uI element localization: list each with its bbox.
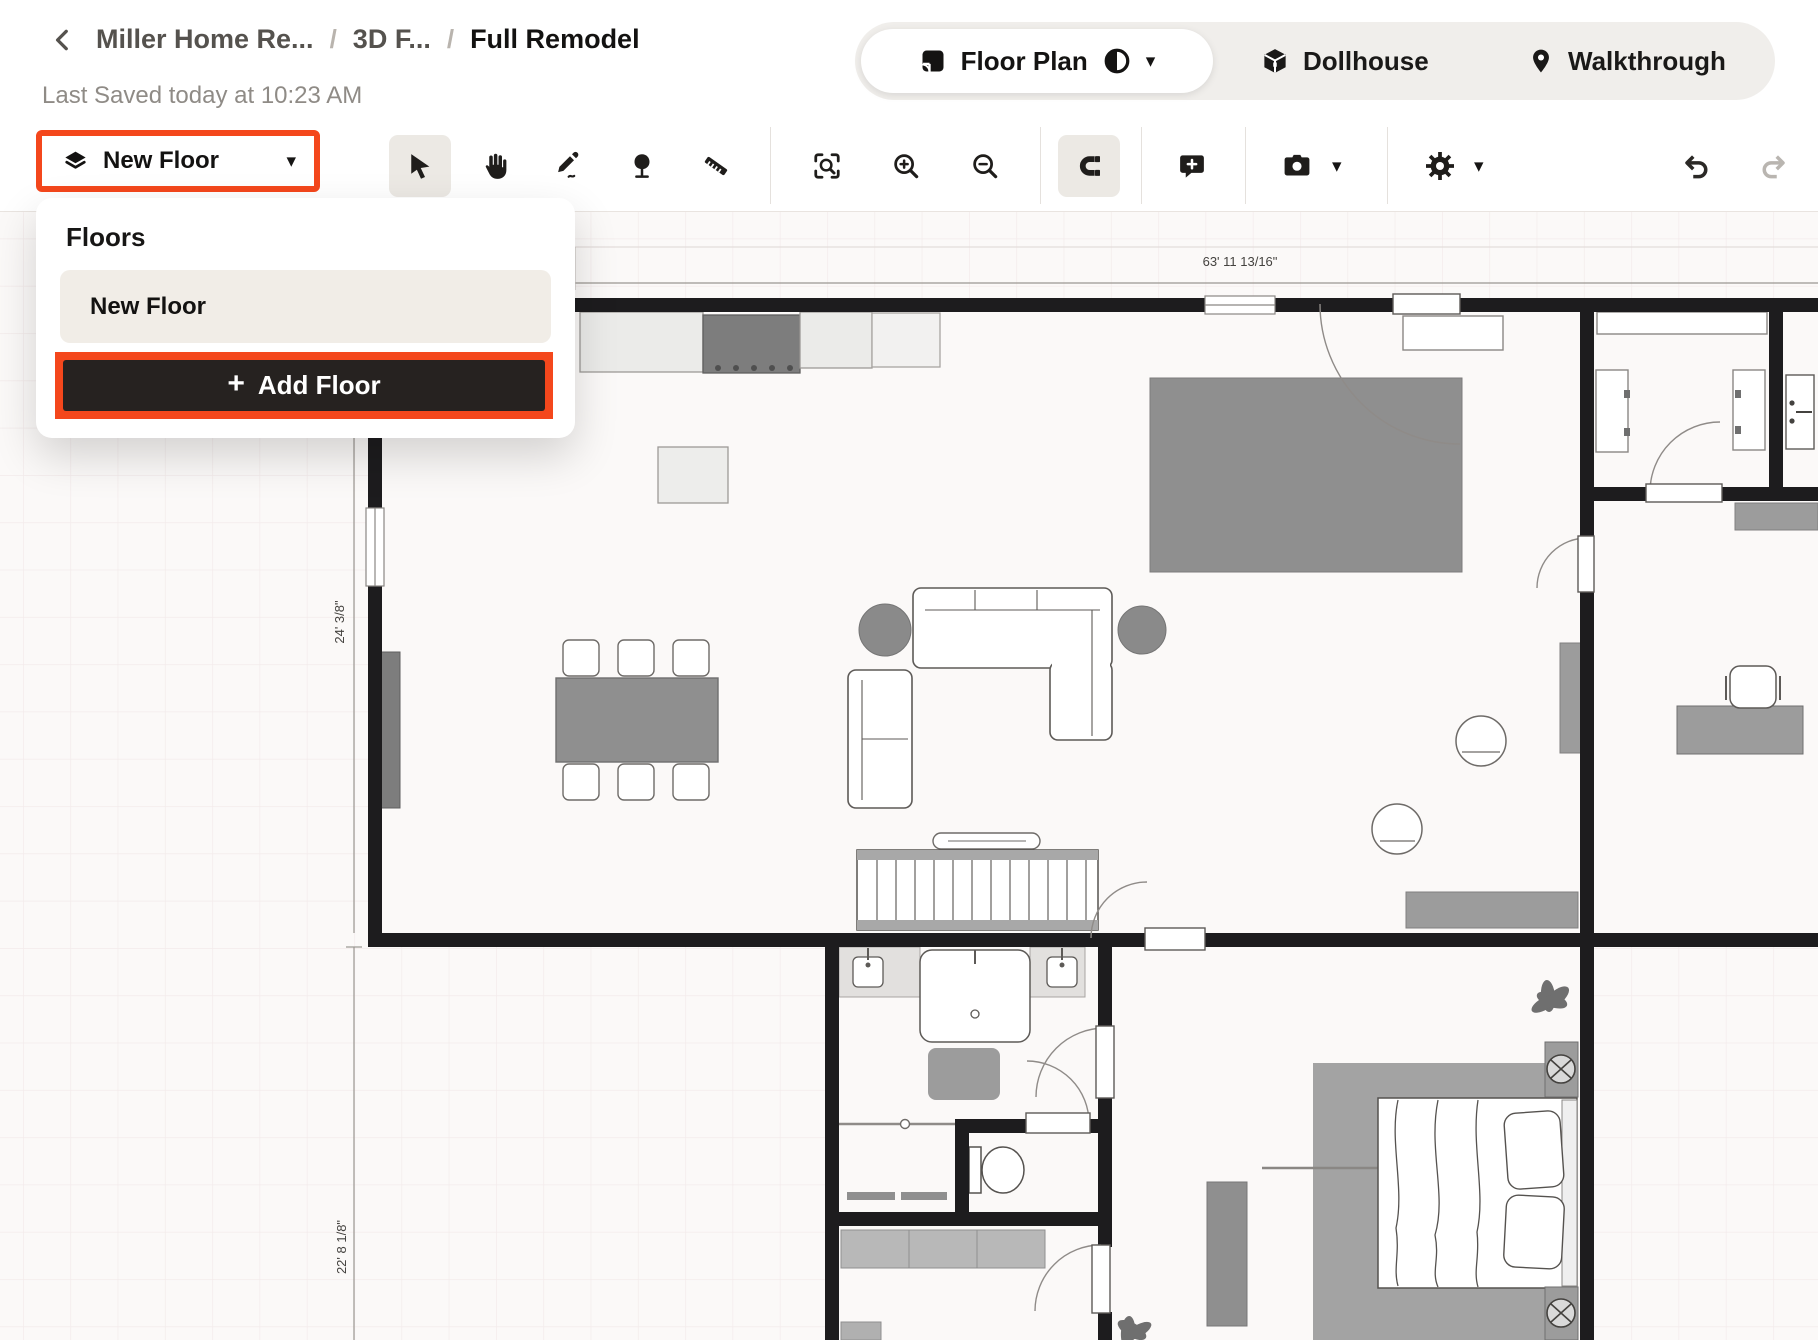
undo-button[interactable] — [1666, 135, 1728, 197]
breadcrumb-separator: / — [330, 24, 337, 55]
fridge — [872, 313, 940, 367]
add-floor-label: Add Floor — [258, 370, 381, 401]
plants-tool-button[interactable] — [611, 135, 673, 197]
kitchen-island — [658, 447, 728, 503]
pillow — [1503, 1110, 1564, 1190]
toolbar-divider — [1387, 127, 1388, 204]
select-tool-button[interactable] — [389, 135, 451, 197]
walkthrough-pin-icon — [1527, 47, 1555, 75]
zoom-fit-icon — [812, 151, 842, 181]
layers-icon — [62, 148, 89, 175]
armchair — [1456, 716, 1506, 766]
loveseat — [848, 670, 912, 808]
pan-tool-button[interactable] — [463, 135, 525, 197]
breadcrumb-separator: / — [447, 24, 454, 55]
chevron-left-icon — [50, 27, 76, 53]
snapshot-button[interactable] — [1266, 135, 1328, 197]
nightstand — [1545, 1287, 1578, 1340]
sideboard — [1560, 643, 1581, 753]
dim-lower-height: 22' 8 1/8" — [334, 1220, 349, 1274]
side-table — [1118, 606, 1166, 654]
dining-set[interactable] — [556, 640, 718, 800]
toilet — [969, 1147, 1024, 1193]
contrast-icon[interactable] — [1102, 46, 1132, 76]
breadcrumb-folder[interactable]: 3D F... — [353, 24, 431, 55]
zoom-in-icon — [891, 151, 921, 181]
shower-drain — [901, 1192, 947, 1200]
chevron-down-icon: ▾ — [286, 152, 296, 171]
tab-walkthrough-label: Walkthrough — [1568, 46, 1726, 77]
zoom-out-button[interactable] — [954, 135, 1016, 197]
toolbar-divider — [1245, 127, 1246, 204]
floors-panel: Floors New Floor + Add Floor — [36, 198, 575, 438]
comment-plus-icon — [1177, 151, 1207, 181]
tv-console — [1403, 316, 1503, 350]
coffee-table — [933, 833, 1040, 849]
area-rug — [1150, 378, 1462, 572]
bath-mat — [928, 1048, 1000, 1100]
dollhouse-icon — [1260, 46, 1290, 76]
sink — [1047, 957, 1077, 987]
dining-table — [556, 678, 718, 762]
bed — [1378, 1098, 1577, 1288]
armchair — [1372, 804, 1422, 854]
tab-floor-plan-label: Floor Plan — [961, 46, 1088, 77]
zoom-out-icon — [970, 151, 1000, 181]
dim-upper-height: 24' 3/8" — [332, 600, 347, 644]
toolbar-divider — [770, 127, 771, 204]
desk — [1677, 706, 1803, 754]
pencil-icon — [553, 151, 583, 181]
floor-selector-label: New Floor — [103, 147, 272, 175]
back-button[interactable] — [50, 27, 76, 53]
gear-icon — [1424, 150, 1456, 182]
tab-walkthrough[interactable]: Walkthrough — [1527, 22, 1726, 100]
pillow — [1503, 1195, 1565, 1270]
view-switcher: Floor Plan ▾ Dollhouse Walkthrough — [855, 22, 1775, 100]
plus-icon: + — [227, 369, 245, 399]
floor-plan-icon — [919, 47, 947, 75]
headboard — [1562, 1100, 1577, 1286]
zoom-in-button[interactable] — [875, 135, 937, 197]
breadcrumb-project[interactable]: Miller Home Re... — [96, 24, 314, 55]
floors-panel-title: Floors — [66, 222, 145, 253]
settings-button[interactable] — [1409, 135, 1471, 197]
floor-list-item[interactable]: New Floor — [60, 270, 551, 343]
redo-icon — [1758, 151, 1788, 181]
add-floor-button[interactable]: + Add Floor — [63, 360, 545, 411]
desk-chair — [1730, 666, 1776, 708]
last-saved-status: Last Saved today at 10:23 AM — [42, 82, 362, 110]
dim-top-width: 63' 11 13/16" — [1203, 254, 1278, 269]
nightstand — [1545, 1042, 1578, 1097]
zoom-to-fit-button[interactable] — [796, 135, 858, 197]
hand-icon — [479, 151, 509, 181]
floor-selector-button[interactable]: New Floor ▾ — [36, 130, 320, 192]
chevron-down-icon[interactable]: ▾ — [1146, 52, 1156, 71]
credenza — [1406, 892, 1578, 928]
stove — [703, 315, 800, 373]
camera-icon — [1281, 150, 1313, 182]
snapshot-caret[interactable]: ▾ — [1332, 135, 1342, 197]
toolbar-divider — [1040, 127, 1041, 204]
tab-dollhouse-label: Dollhouse — [1303, 46, 1429, 77]
tab-dollhouse[interactable]: Dollhouse — [1260, 22, 1429, 100]
magnet-icon — [1074, 151, 1104, 181]
app-header: Miller Home Re... / 3D F... / Full Remod… — [0, 0, 1818, 120]
undo-icon — [1682, 151, 1712, 181]
shower-drain — [847, 1192, 895, 1200]
tab-floor-plan[interactable]: Floor Plan ▾ — [861, 29, 1213, 93]
measure-tool-button[interactable] — [685, 135, 747, 197]
draw-tool-button[interactable] — [537, 135, 599, 197]
redo-button[interactable] — [1742, 135, 1804, 197]
settings-caret[interactable]: ▾ — [1474, 135, 1484, 197]
add-floor-highlight: + Add Floor — [55, 352, 553, 419]
cursor-icon — [405, 151, 435, 181]
toolbar-divider — [1141, 127, 1142, 204]
sink — [853, 957, 883, 987]
snap-tool-button[interactable] — [1058, 135, 1120, 197]
tree-icon — [627, 151, 657, 181]
ruler-icon — [701, 151, 731, 181]
staircase[interactable] — [857, 850, 1098, 930]
comment-tool-button[interactable] — [1161, 135, 1223, 197]
breadcrumb-current: Full Remodel — [470, 24, 640, 55]
office-sideboard — [1735, 503, 1818, 530]
floor-item-label: New Floor — [90, 293, 206, 321]
dresser — [1207, 1182, 1247, 1326]
breadcrumb: Miller Home Re... / 3D F... / Full Remod… — [50, 24, 640, 55]
side-table — [859, 604, 911, 656]
